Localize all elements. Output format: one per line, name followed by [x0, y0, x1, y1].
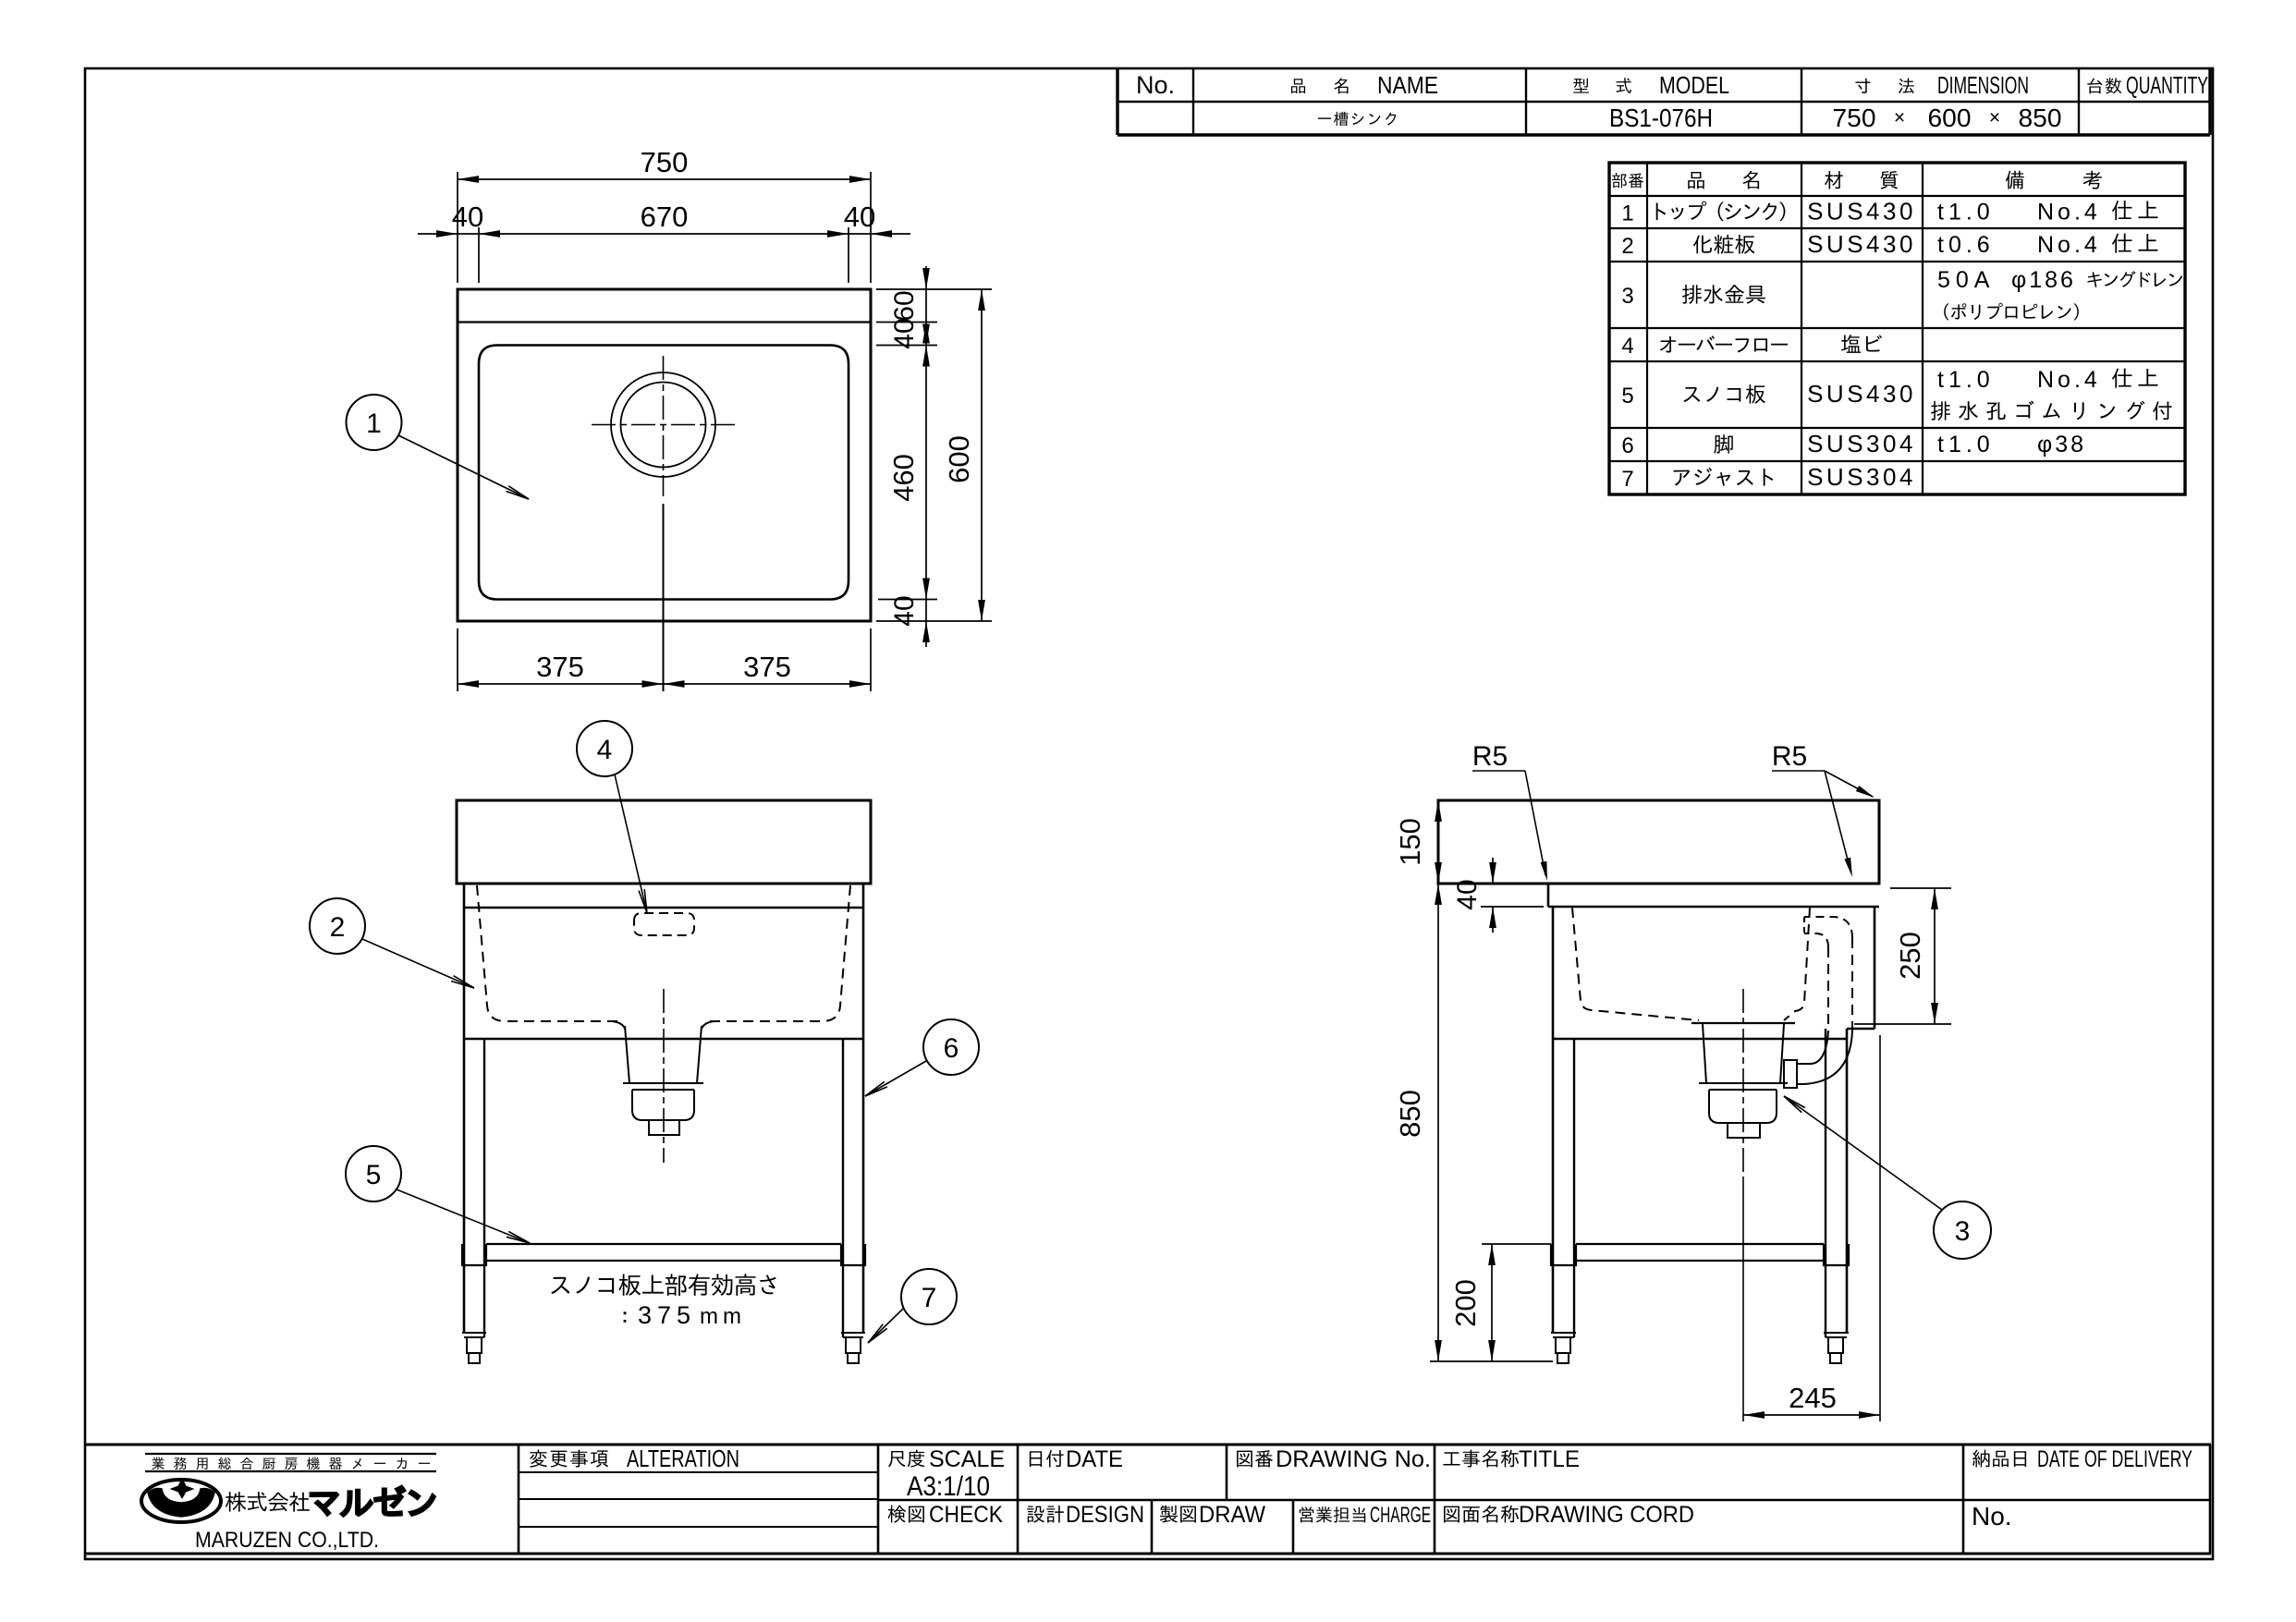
svg-text:40: 40	[452, 201, 483, 233]
svg-text:2: 2	[330, 912, 346, 943]
svg-text:150: 150	[1394, 818, 1426, 866]
svg-text:375: 375	[536, 651, 584, 683]
svg-text:t1.0: t1.0	[1937, 367, 1995, 393]
svg-text:MARUZEN CO.,LTD.: MARUZEN CO.,LTD.	[195, 1528, 379, 1553]
svg-text:SCALE: SCALE	[929, 1446, 1005, 1472]
svg-text:SUS430: SUS430	[1807, 198, 1916, 226]
svg-text:7: 7	[1621, 467, 1633, 492]
svg-text:850: 850	[1394, 1090, 1426, 1138]
svg-text:4: 4	[1621, 334, 1633, 359]
svg-text:40: 40	[889, 595, 920, 626]
svg-text:5: 5	[1621, 384, 1633, 409]
svg-text:250: 250	[1894, 932, 1926, 980]
svg-text:×: ×	[1894, 107, 1905, 128]
svg-text:2: 2	[1621, 234, 1633, 259]
svg-text:TITLE: TITLE	[1519, 1446, 1580, 1472]
svg-text:NAME: NAME	[1377, 71, 1438, 99]
svg-text:DIMENSION: DIMENSION	[1937, 71, 2029, 99]
svg-text:DRAWING No.: DRAWING No.	[1276, 1446, 1431, 1472]
svg-text:mm: mm	[700, 1304, 746, 1329]
svg-text:3: 3	[1621, 284, 1633, 309]
svg-text:φ186: φ186	[2011, 267, 2076, 293]
svg-text:4: 4	[597, 735, 613, 765]
svg-text:460: 460	[887, 454, 920, 502]
svg-text:375: 375	[743, 651, 791, 683]
svg-text:670: 670	[641, 201, 689, 233]
svg-text:DRAW: DRAW	[1199, 1502, 1265, 1528]
svg-text:40: 40	[889, 318, 920, 348]
svg-text:No.4: No.4	[2037, 367, 2101, 393]
svg-text:ALTERATION: ALTERATION	[627, 1445, 739, 1472]
svg-text:245: 245	[1789, 1382, 1837, 1414]
svg-text:MODEL: MODEL	[1659, 71, 1729, 99]
svg-text:DRAWING CORD: DRAWING CORD	[1519, 1502, 1694, 1528]
svg-text:CHARGE: CHARGE	[1370, 1503, 1431, 1528]
svg-text:600: 600	[943, 435, 975, 483]
svg-text:No.4: No.4	[2037, 232, 2101, 258]
svg-text:DESIGN: DESIGN	[1066, 1502, 1144, 1528]
svg-text:3: 3	[1955, 1216, 1971, 1247]
svg-text:6: 6	[944, 1033, 959, 1064]
svg-text:BS1-076H: BS1-076H	[1609, 104, 1713, 132]
svg-text:850: 850	[2019, 104, 2062, 132]
svg-text:No.: No.	[1136, 71, 1175, 99]
svg-text:200: 200	[1449, 1279, 1482, 1327]
svg-text:60: 60	[889, 290, 920, 321]
svg-text:No.4: No.4	[2037, 200, 2101, 226]
svg-text:φ38: φ38	[2037, 432, 2086, 457]
svg-text:DATE OF DELIVERY: DATE OF DELIVERY	[2037, 1446, 2192, 1472]
svg-text:SUS304: SUS304	[1807, 463, 1916, 491]
svg-text:SUS304: SUS304	[1807, 430, 1916, 457]
svg-text:6: 6	[1621, 433, 1633, 458]
svg-text:600: 600	[1928, 104, 1972, 132]
svg-text:A3:1/10: A3:1/10	[907, 1471, 990, 1502]
svg-text:SUS430: SUS430	[1807, 380, 1916, 408]
svg-text:No.: No.	[1972, 1502, 2012, 1531]
svg-text:750: 750	[1833, 104, 1876, 132]
svg-text:t0.6: t0.6	[1937, 232, 1995, 258]
svg-text:DATE: DATE	[1066, 1446, 1123, 1472]
svg-text:5: 5	[366, 1160, 382, 1190]
svg-text:t1.0: t1.0	[1937, 200, 1995, 226]
svg-text:R5: R5	[1472, 741, 1508, 772]
svg-text:1: 1	[366, 409, 382, 439]
svg-text:7: 7	[922, 1283, 937, 1313]
svg-text:R5: R5	[1772, 741, 1807, 772]
svg-text:40: 40	[844, 201, 875, 233]
svg-text:×: ×	[1989, 107, 2000, 128]
svg-text:50A: 50A	[1937, 267, 1995, 293]
svg-text:750: 750	[641, 146, 689, 178]
svg-text:40: 40	[1452, 879, 1483, 909]
svg-text:SUS430: SUS430	[1807, 230, 1916, 258]
svg-text:1: 1	[1621, 201, 1633, 226]
svg-text:CHECK: CHECK	[929, 1502, 1003, 1528]
svg-text:375: 375	[638, 1301, 696, 1329]
svg-text:t1.0: t1.0	[1937, 432, 1995, 457]
svg-text:QUANTITY: QUANTITY	[2126, 71, 2208, 99]
